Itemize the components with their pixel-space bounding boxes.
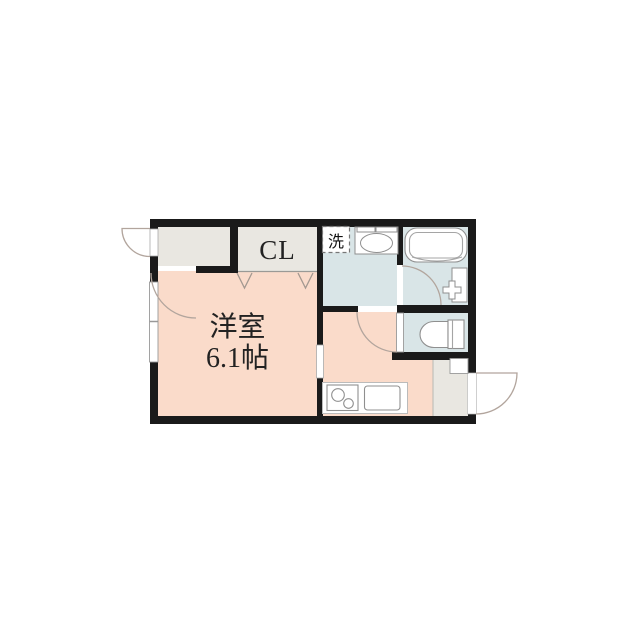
washbasin-icon [355,227,398,254]
stove-icon [327,385,358,411]
main-room-size: 6.1帖 [206,343,269,374]
entrance-door-opening [468,373,477,414]
entrance-door-swing [476,373,517,414]
laundry-label: 洗 [322,226,350,253]
kitchen-sink-icon [365,386,401,410]
toilet-icon [420,320,464,349]
floor-plan: CL 洗 洋室 6.1帖 [0,0,640,640]
shoe-cabinet-icon [450,359,468,374]
fixture-layer [0,0,640,640]
hall-door-opening [150,229,158,256]
bathroom-door-swing [402,266,441,305]
bathtub-icon [405,228,467,262]
hall-exterior-door-swing [122,229,150,257]
main-room-name: 洋室 [209,312,265,343]
bath-faucet-icon [443,268,467,302]
room-kitchen-opening [317,345,324,378]
closet-label: CL [238,229,317,271]
main-room-label: 洋室 6.1帖 [158,312,317,374]
kitchen-door-swing [357,312,397,352]
folding-door-icons [237,273,313,288]
toilet-door [397,313,404,352]
